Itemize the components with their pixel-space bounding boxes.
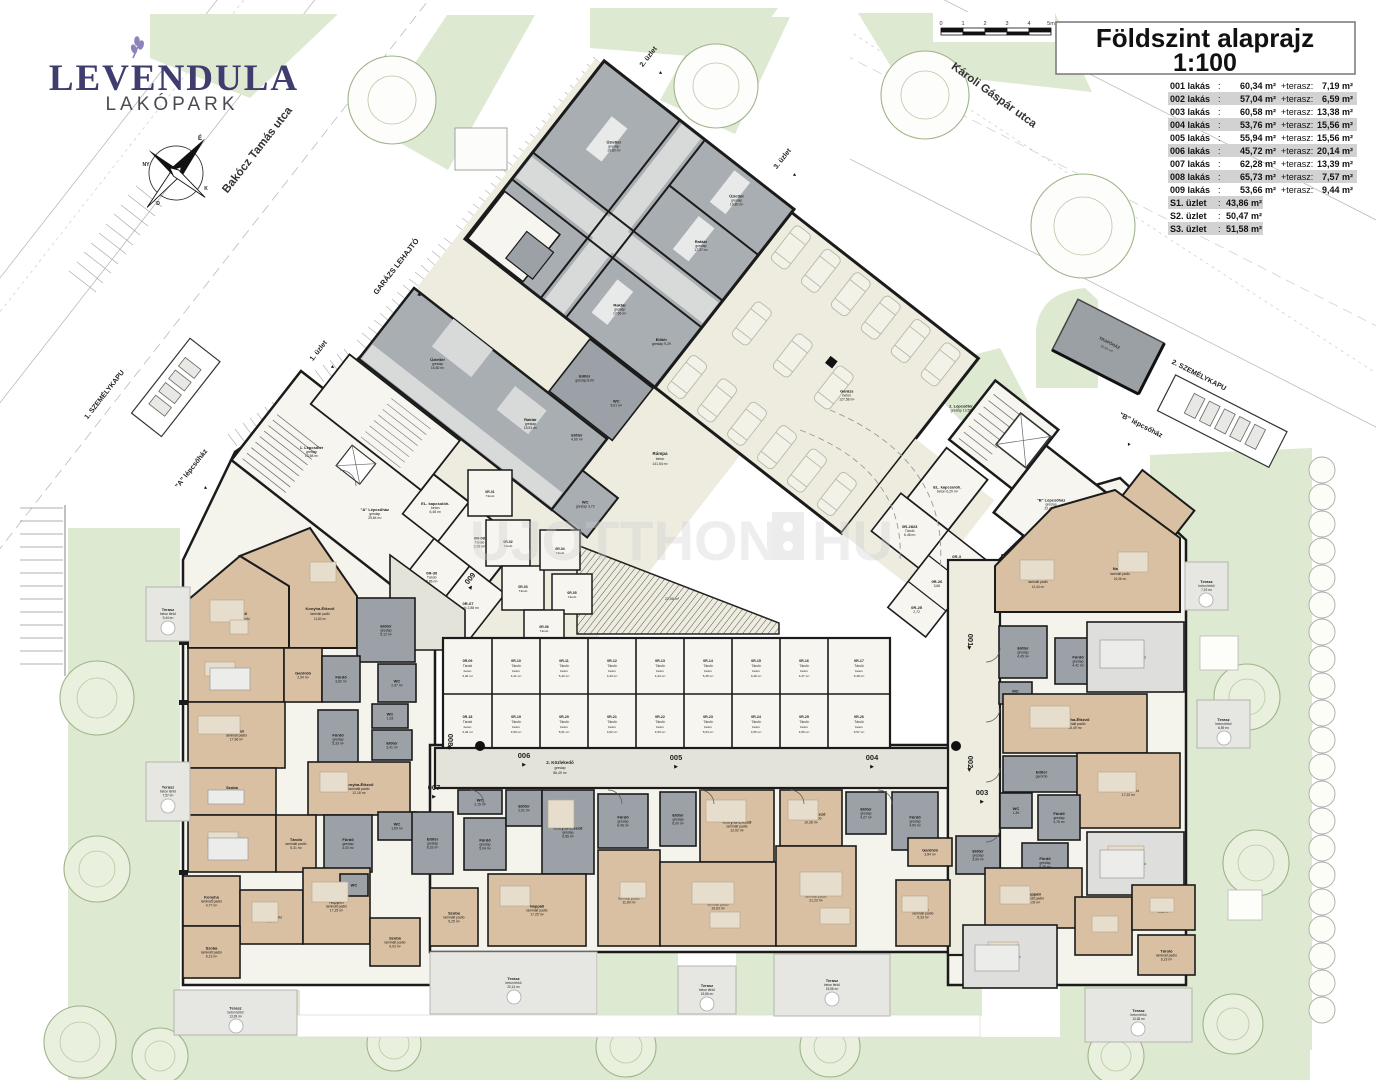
svg-text:7,57 m²: 7,57 m² [1322, 172, 1353, 182]
svg-text:0R-25: 0R-25 [799, 715, 809, 719]
svg-text:beton: beton [512, 669, 520, 673]
svg-text:2. Közlekedő: 2. Közlekedő [546, 760, 574, 765]
svg-text:45,72 m²: 45,72 m² [1240, 146, 1276, 156]
svg-text:19,63 m²: 19,63 m² [711, 907, 725, 911]
svg-text:▶: ▶ [432, 794, 436, 800]
svg-text:4,44 m²: 4,44 m² [655, 674, 666, 678]
svg-text:+terasz:: +terasz: [1281, 81, 1313, 91]
svg-text:0R-13: 0R-13 [655, 659, 665, 663]
svg-text:53,66 m²: 53,66 m² [1240, 185, 1276, 195]
svg-text:Tároló: Tároló [540, 629, 549, 633]
svg-text:▶: ▶ [966, 768, 972, 772]
svg-text::: : [1218, 159, 1221, 169]
svg-text:greslap 8,00: greslap 8,00 [575, 379, 594, 383]
svg-text:Rámpa: Rámpa [652, 451, 668, 456]
svg-text:+terasz:: +terasz: [1281, 94, 1313, 104]
svg-text:4,50 m²: 4,50 m² [511, 730, 522, 734]
svg-text:beton: beton [752, 725, 760, 729]
svg-text:5m: 5m [1047, 21, 1055, 27]
svg-text:greslap 9,29: greslap 9,29 [652, 342, 671, 346]
svg-text:3,49 m²: 3,49 m² [462, 730, 473, 734]
svg-text:002: 002 [966, 756, 975, 769]
svg-text:4,77 m²: 4,77 m² [206, 904, 218, 908]
svg-text::: : [1218, 172, 1221, 182]
svg-text:beton: beton [464, 725, 472, 729]
svg-text:2: 2 [983, 21, 986, 27]
svg-text:UJOTTHON: UJOTTHON [470, 509, 778, 572]
svg-text:beton: beton [656, 725, 664, 729]
svg-text:4,45 m²: 4,45 m² [1017, 655, 1029, 659]
svg-text:9,03 m²: 9,03 m² [389, 945, 401, 949]
svg-text:5,54 m²: 5,54 m² [703, 730, 714, 734]
svg-text:007 lakás: 007 lakás [1170, 159, 1210, 169]
svg-text:008 lakás: 008 lakás [1170, 172, 1210, 182]
svg-text:▶: ▶ [870, 764, 874, 770]
svg-text:beton: beton [656, 669, 664, 673]
svg-text:0R-26: 0R-26 [854, 715, 864, 719]
svg-text::: : [1218, 224, 1221, 234]
svg-text:55,94 m²: 55,94 m² [1240, 133, 1276, 143]
svg-text:+terasz:: +terasz: [1281, 120, 1313, 130]
svg-text:12,92 m²: 12,92 m² [730, 829, 744, 833]
svg-text:S2. üzlet: S2. üzlet [1170, 211, 1207, 221]
svg-text:Tároló: Tároló [463, 720, 473, 724]
svg-text:007: 007 [428, 783, 441, 792]
svg-text:6,56 m²: 6,56 m² [562, 835, 574, 839]
svg-text:beton: beton [855, 725, 863, 729]
svg-text:009 lakás: 009 lakás [1170, 185, 1210, 195]
svg-text:+terasz:: +terasz: [1281, 146, 1313, 156]
svg-text:Tároló: Tároló [486, 494, 495, 498]
svg-text:21,23 m²: 21,23 m² [809, 899, 823, 903]
svg-text:4,76 m²: 4,76 m² [1053, 820, 1065, 824]
svg-text:0R-10: 0R-10 [511, 659, 521, 663]
svg-text:beton: beton [704, 669, 712, 673]
svg-text:13,58 m²: 13,58 m² [305, 454, 319, 458]
svg-text:7,19 m²: 7,19 m² [1201, 588, 1212, 592]
svg-text:1,69 m²: 1,69 m² [391, 827, 403, 831]
svg-text:57,04 m²: 57,04 m² [1240, 94, 1276, 104]
svg-text:50,47 m²: 50,47 m² [1226, 211, 1262, 221]
svg-text:43,86 m²: 43,86 m² [1226, 198, 1262, 208]
svg-text:beton: beton [512, 725, 520, 729]
svg-text:Konyha-Étkező: Konyha-Étkező [306, 606, 335, 611]
svg-text:004 lakás: 004 lakás [1170, 120, 1210, 130]
svg-text:▶: ▶ [980, 799, 984, 805]
svg-text:7,19 m²: 7,19 m² [1322, 81, 1353, 91]
svg-text:NY: NY [143, 162, 151, 168]
svg-text:6,59 m²: 6,59 m² [1218, 726, 1229, 730]
svg-text:Tároló: Tároló [751, 664, 761, 668]
svg-text:17,37 m²: 17,37 m² [694, 248, 708, 252]
svg-text:3,46 m²: 3,46 m² [751, 674, 762, 678]
svg-text:Tároló: Tároló [559, 664, 569, 668]
svg-text:beton: beton [608, 725, 616, 729]
svg-text:1:100: 1:100 [1173, 49, 1237, 77]
svg-text:60,34 m²: 60,34 m² [1240, 81, 1276, 91]
svg-text:004: 004 [866, 753, 879, 762]
svg-text:gardrób: gardrób [1036, 775, 1048, 779]
svg-text:laminált padló: laminált padló [310, 612, 330, 616]
svg-text:beton: beton [704, 725, 712, 729]
svg-text:WC: WC [351, 883, 358, 888]
svg-text:+terasz:: +terasz: [1281, 185, 1313, 195]
svg-text:001 lakás: 001 lakás [1170, 81, 1210, 91]
svg-text:2,91 m²: 2,91 m² [518, 809, 530, 813]
svg-text:5,42 m²: 5,42 m² [559, 674, 570, 678]
svg-text:Tároló: Tároló [519, 589, 528, 593]
svg-text:15,56 m²: 15,56 m² [826, 987, 839, 991]
svg-text:0R-23: 0R-23 [703, 715, 713, 719]
svg-text:+terasz:: +terasz: [1281, 107, 1313, 117]
svg-text:16,36 m²: 16,36 m² [1114, 577, 1127, 581]
svg-text:60,58 m²: 60,58 m² [1240, 107, 1276, 117]
svg-text:53,76 m²: 53,76 m² [1240, 120, 1276, 130]
svg-text:0R-11: 0R-11 [559, 659, 569, 663]
svg-text:10,36 m²: 10,36 m² [804, 821, 818, 825]
svg-text:beton: beton [560, 725, 568, 729]
svg-text::: : [1218, 107, 1221, 117]
svg-text:4,41 m²: 4,41 m² [1072, 664, 1084, 668]
svg-text:Tároló: Tároló [854, 664, 864, 668]
svg-text:9,44 m²: 9,44 m² [163, 616, 174, 620]
svg-text:beton: beton [560, 669, 568, 673]
svg-text::: : [1218, 146, 1221, 156]
svg-text:▶: ▶ [522, 762, 526, 768]
svg-text:5,48 m²: 5,48 m² [854, 674, 865, 678]
svg-text:11,90 m²: 11,90 m² [622, 901, 636, 905]
svg-text:15,49 m²: 15,49 m² [1068, 726, 1082, 730]
svg-text:22,68 m²: 22,68 m² [665, 597, 680, 601]
svg-text:0R-24: 0R-24 [751, 715, 761, 719]
svg-text:3,99 m²: 3,99 m² [972, 858, 984, 862]
svg-text:▶: ▶ [674, 764, 678, 770]
svg-text:0R-09: 0R-09 [463, 659, 473, 663]
svg-text:6,23 m²: 6,23 m² [1161, 958, 1173, 962]
svg-text:4,41 m²: 4,41 m² [511, 674, 522, 678]
svg-text:beton: beton [855, 669, 863, 673]
svg-text:51,58 m²: 51,58 m² [1226, 224, 1262, 234]
svg-text:17,66 m²: 17,66 m² [613, 312, 627, 316]
svg-text:127,58 m²: 127,58 m² [839, 398, 855, 402]
svg-text:6,48 m²: 6,48 m² [430, 510, 442, 514]
svg-text:0R-12: 0R-12 [607, 659, 617, 663]
svg-text:62,28 m²: 62,28 m² [1240, 159, 1276, 169]
svg-text:3,52 m²: 3,52 m² [607, 730, 618, 734]
svg-text::: : [1218, 211, 1221, 221]
svg-text:006 lakás: 006 lakás [1170, 146, 1210, 156]
svg-text:Tároló: Tároló [751, 720, 761, 724]
svg-text:005: 005 [670, 753, 683, 762]
svg-text:5,12 m²: 5,12 m² [380, 633, 392, 637]
svg-text:5,31 m²: 5,31 m² [290, 846, 302, 850]
svg-text:3,40 m²: 3,40 m² [462, 674, 473, 678]
svg-text:15,56 m²: 15,56 m² [1317, 133, 1353, 143]
svg-text:11,82 m²: 11,82 m² [314, 617, 326, 621]
svg-text:3,55 m²: 3,55 m² [751, 730, 762, 734]
svg-text:S1. üzlet: S1. üzlet [1170, 198, 1207, 208]
svg-text:Tároló: Tároló [655, 664, 665, 668]
svg-text:003: 003 [976, 788, 989, 797]
svg-text:13,38 m²: 13,38 m² [1132, 1017, 1145, 1021]
svg-text:15,56 m²: 15,56 m² [1317, 120, 1353, 130]
svg-text:LAKÓPARK: LAKÓPARK [105, 93, 238, 115]
svg-text:Tároló: Tároló [559, 720, 569, 724]
svg-text::: : [1218, 94, 1221, 104]
svg-text:65,73 m²: 65,73 m² [1240, 172, 1276, 182]
svg-text:+terasz:: +terasz: [1281, 133, 1313, 143]
svg-text:▶: ▶ [966, 646, 972, 650]
svg-text:3,43 m²: 3,43 m² [607, 674, 618, 678]
svg-text:13,39 m²: 13,39 m² [1317, 159, 1353, 169]
svg-text:6,13 m²: 6,13 m² [206, 955, 218, 959]
svg-text:beton: beton [752, 669, 760, 673]
svg-text:LEVENDULA: LEVENDULA [49, 58, 299, 99]
svg-text:6,59 m²: 6,59 m² [1322, 94, 1353, 104]
svg-text:Tároló: Tároló [655, 720, 665, 724]
svg-text:20,14 m²: 20,14 m² [507, 985, 520, 989]
svg-text:0R-14: 0R-14 [703, 659, 713, 663]
svg-text:2,97 m²: 2,97 m² [391, 684, 403, 688]
svg-text:Tároló: Tároló [511, 664, 521, 668]
svg-text:25,84 m²: 25,84 m² [368, 516, 382, 520]
svg-text:Tároló: Tároló [703, 720, 713, 724]
svg-text:beton: beton [656, 457, 665, 461]
svg-text:4,27 m²: 4,27 m² [860, 816, 872, 820]
svg-text:Tároló: Tároló [854, 720, 864, 724]
svg-text:4,53 m²: 4,53 m² [655, 730, 666, 734]
svg-text:laminált padló: laminált padló [1110, 572, 1130, 576]
svg-text:Tároló: Tároló [607, 664, 617, 668]
svg-text::: : [1218, 120, 1221, 130]
svg-text:13,39 m²: 13,39 m² [229, 1015, 242, 1019]
svg-text:Tároló: Tároló [568, 595, 577, 599]
svg-text:3,82 m²: 3,82 m² [335, 680, 347, 684]
svg-text:0: 0 [939, 21, 942, 27]
svg-text:0R-22: 0R-22 [655, 715, 665, 719]
svg-text:19,80 m²: 19,80 m² [730, 202, 744, 206]
svg-text:005 lakás: 005 lakás [1170, 133, 1210, 143]
svg-text:3,84 m²: 3,84 m² [924, 853, 936, 857]
svg-text:0R-15: 0R-15 [751, 659, 761, 663]
svg-text:9,25 m²: 9,25 m² [448, 920, 460, 924]
svg-text:greslap 13,59: greslap 13,59 [951, 409, 972, 413]
svg-text:003 lakás: 003 lakás [1170, 107, 1210, 117]
svg-text::: : [1218, 81, 1221, 91]
svg-text:5,57 m²: 5,57 m² [854, 730, 865, 734]
svg-text::: : [1218, 198, 1221, 208]
svg-text:4,56 m²: 4,56 m² [799, 730, 810, 734]
svg-text:+terasz:: +terasz: [1281, 159, 1313, 169]
svg-text:1: 1 [961, 21, 964, 27]
svg-text:1,93: 1,93 [387, 717, 394, 721]
svg-text:D: D [156, 201, 160, 207]
svg-text:141,54 m²: 141,54 m² [652, 462, 668, 466]
svg-text:0R-20: 0R-20 [559, 715, 569, 719]
svg-text:12,18 m²: 12,18 m² [352, 791, 366, 795]
svg-text:6,46 m²: 6,46 m² [904, 533, 916, 537]
svg-text:2,54 m²: 2,54 m² [297, 676, 309, 680]
svg-text:9,33 m²: 9,33 m² [917, 916, 929, 920]
svg-text:HU: HU [812, 509, 893, 572]
svg-text:17,96 m²: 17,96 m² [230, 738, 244, 742]
svg-text:laminált padló: laminált padló [1028, 580, 1048, 584]
svg-text:7,57 m²: 7,57 m² [163, 794, 174, 798]
svg-text:16,80 m²: 16,80 m² [431, 366, 445, 370]
svg-text:+terasz:: +terasz: [1281, 172, 1313, 182]
svg-text:4: 4 [1027, 21, 1030, 27]
svg-text:beton 6,29 m²: beton 6,29 m² [937, 489, 959, 493]
svg-text:17,25 m²: 17,25 m² [330, 909, 344, 913]
svg-text:É: É [198, 134, 202, 142]
svg-text:5,04 m²: 5,04 m² [479, 847, 491, 851]
svg-text:beton: beton [800, 725, 808, 729]
svg-text:5,01 m²: 5,01 m² [610, 403, 622, 407]
svg-text:6,46 m²: 6,46 m² [617, 824, 629, 828]
svg-text:beton: beton [464, 669, 472, 673]
svg-text:Tároló: Tároló [511, 720, 521, 724]
svg-text:12,44 m²: 12,44 m² [1032, 585, 1045, 589]
svg-text:0R-17: 0R-17 [854, 659, 864, 663]
svg-text:2,72: 2,72 [913, 610, 920, 614]
svg-text:001: 001 [966, 634, 975, 647]
svg-text:86,49 m²: 86,49 m² [553, 771, 567, 775]
svg-text:3,66: 3,66 [934, 584, 941, 588]
svg-text:Tároló: Tároló [703, 664, 713, 668]
svg-text:Tároló: Tároló [607, 720, 617, 724]
svg-text:4,60 m²: 4,60 m² [571, 437, 583, 441]
svg-text:8,33 m²: 8,33 m² [427, 846, 439, 850]
svg-text:9,44 m²: 9,44 m² [1322, 185, 1353, 195]
svg-text::: : [1218, 133, 1221, 143]
svg-text:13,38 m²: 13,38 m² [1317, 107, 1353, 117]
svg-text:Tároló: Tároló [463, 664, 473, 668]
svg-text:18,93 m²: 18,93 m² [524, 426, 538, 430]
svg-text:▶: ▶ [446, 746, 452, 750]
svg-text:20,14 m²: 20,14 m² [1317, 146, 1353, 156]
svg-text:Tároló: Tároló [799, 720, 809, 724]
svg-text:19,80 m²: 19,80 m² [607, 148, 621, 152]
svg-text:15,56 m²: 15,56 m² [701, 992, 714, 996]
svg-text:Tároló: Tároló [799, 664, 809, 668]
svg-text:S3. üzlet: S3. üzlet [1170, 224, 1207, 234]
svg-text:17,22 m²: 17,22 m² [1122, 793, 1136, 797]
svg-text:0R-16: 0R-16 [799, 659, 809, 663]
svg-text:008: 008 [446, 734, 455, 747]
svg-text:4,90 m²: 4,90 m² [909, 824, 921, 828]
svg-text:greslap: greslap [554, 766, 565, 770]
svg-text:2,15 m²: 2,15 m² [474, 803, 486, 807]
svg-text:17,25 m²: 17,25 m² [530, 913, 544, 917]
svg-text:3,41 m²: 3,41 m² [386, 746, 398, 750]
svg-text:0R-21: 0R-21 [607, 715, 617, 719]
svg-text:beton: beton [800, 669, 808, 673]
svg-text::: : [1218, 185, 1221, 195]
svg-text:002 lakás: 002 lakás [1170, 94, 1210, 104]
svg-text:5,45 m²: 5,45 m² [703, 674, 714, 678]
svg-text:0R-18: 0R-18 [463, 715, 473, 719]
svg-text:006: 006 [518, 751, 531, 760]
svg-text:6,00 m²: 6,00 m² [672, 822, 684, 826]
svg-text:3: 3 [1005, 21, 1008, 27]
svg-text:4,03 m²: 4,03 m² [342, 846, 354, 850]
svg-text:beton: beton [608, 669, 616, 673]
svg-text:5,51 m²: 5,51 m² [559, 730, 570, 734]
svg-text:K: K [204, 186, 208, 192]
svg-text:1,49: 1,49 [1013, 811, 1020, 815]
svg-text:4,47 m²: 4,47 m² [799, 674, 810, 678]
svg-text:5,33 m²: 5,33 m² [332, 742, 344, 746]
svg-text:0R-19: 0R-19 [511, 715, 521, 719]
